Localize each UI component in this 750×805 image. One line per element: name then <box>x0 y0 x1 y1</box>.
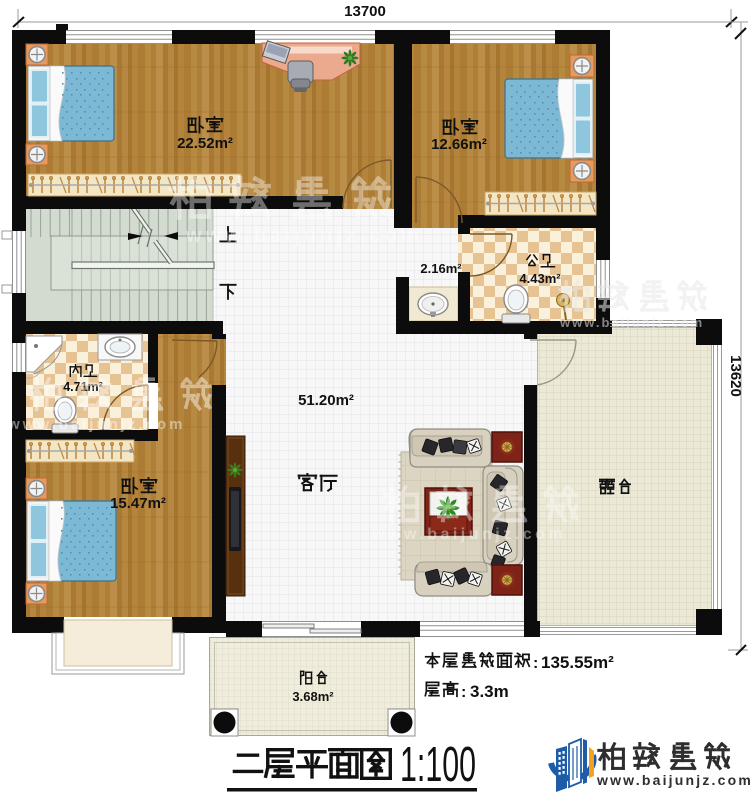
svg-text:22.52m²: 22.52m² <box>177 135 233 152</box>
svg-text:www.baijunjz.com: www.baijunjz.com <box>559 315 704 330</box>
svg-text:1:100: 1:100 <box>400 738 476 792</box>
svg-text:2.16m²: 2.16m² <box>420 261 462 276</box>
svg-text:135.55m²: 135.55m² <box>541 653 614 672</box>
svg-text:51.20m²: 51.20m² <box>298 392 354 409</box>
svg-text::: : <box>533 655 538 672</box>
svg-text:3.68m²: 3.68m² <box>292 689 334 704</box>
svg-text:3.3m: 3.3m <box>470 682 509 701</box>
svg-text:www.baijunjz.com: www.baijunjz.com <box>371 526 566 543</box>
svg-text:www.baijunjz.com: www.baijunjz.com <box>7 416 185 433</box>
svg-text::: : <box>461 684 466 701</box>
svg-text:13620: 13620 <box>727 355 744 397</box>
svg-text:www.baijunjz.com: www.baijunjz.com <box>596 772 750 788</box>
svg-text:www.baijunjz.com: www.baijunjz.com <box>185 225 423 247</box>
svg-text:13700: 13700 <box>344 3 386 20</box>
svg-text:4.43m²: 4.43m² <box>519 271 561 286</box>
svg-text:12.66m²: 12.66m² <box>431 136 487 153</box>
svg-text:15.47m²: 15.47m² <box>110 495 166 512</box>
